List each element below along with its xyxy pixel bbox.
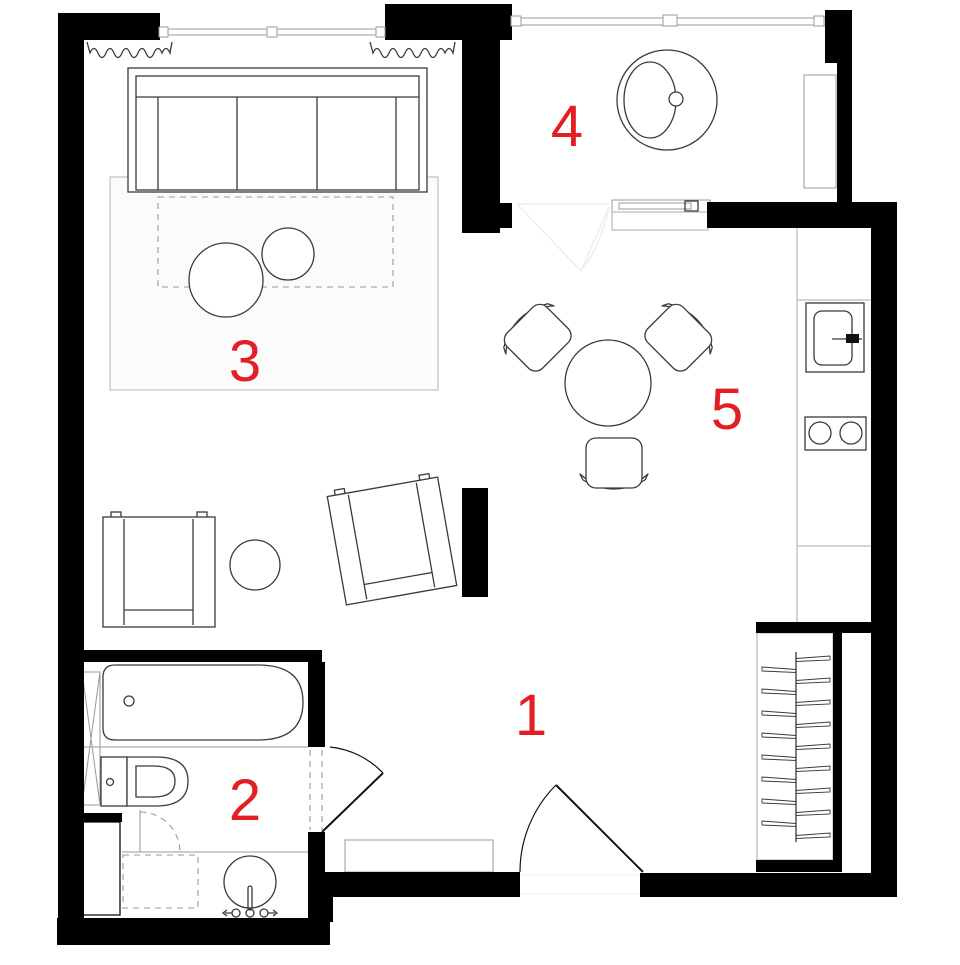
entry-door-icon [520,785,643,894]
dining-chair-icon [580,438,648,489]
bathroom-door-icon [322,747,383,832]
washbasin-icon [223,856,277,917]
kitchen-area [797,228,871,622]
interior-door-icon [140,810,180,852]
dining-area [495,295,720,489]
faucet-icon [846,334,859,343]
living-area [110,68,438,390]
dining-chair-icon [495,295,579,379]
kitchen-sink-icon [806,303,864,372]
bathroom-area [82,665,322,917]
window-right-icon [511,15,825,26]
chair-pivot-icon [669,92,683,106]
sofa-icon [128,68,427,192]
chair-cushion-icon [624,62,676,138]
lounge-area [103,472,457,627]
shower-tray-icon [123,855,198,908]
entry-area [322,747,643,894]
dining-chair-icon [637,295,721,379]
bathtub-icon [103,665,303,740]
wardrobe-area [757,633,833,860]
dining-table-icon [565,340,651,426]
duct-shaft-icon [82,672,100,805]
room-label-3: 3 [229,329,261,394]
room-label-1: 1 [515,683,547,748]
room-4-area [518,50,836,271]
doormat-icon [345,840,493,872]
armchair-icon [103,512,215,627]
rug-icon [110,177,438,390]
coffee-table-small-icon [262,228,314,280]
floor-plan-page: 1 2 3 4 5 [0,0,960,960]
toilet-icon [101,757,188,806]
tall-cabinet-icon [804,75,836,188]
floor-plan: 1 2 3 4 5 [0,0,960,960]
sliding-door-icon [612,200,710,230]
armchair-rotated-icon [326,472,456,605]
coffee-table-icon [189,243,263,317]
pivot-door-faint-icon [518,204,609,271]
appliance-niche-icon [82,822,120,915]
room-label-4: 4 [551,94,583,159]
shower-screen-icon [310,750,322,830]
curtain-icon [87,42,172,58]
window-left-icon [159,27,385,37]
cooktop-icon [805,417,866,450]
side-table-icon [230,540,280,590]
room-label-5: 5 [711,377,743,442]
curtain-icon [370,42,455,58]
tv-partition-icon [462,488,488,597]
room-label-2: 2 [229,768,261,833]
tap-handle-icon [223,910,232,916]
tap-handle-icon [268,910,277,916]
